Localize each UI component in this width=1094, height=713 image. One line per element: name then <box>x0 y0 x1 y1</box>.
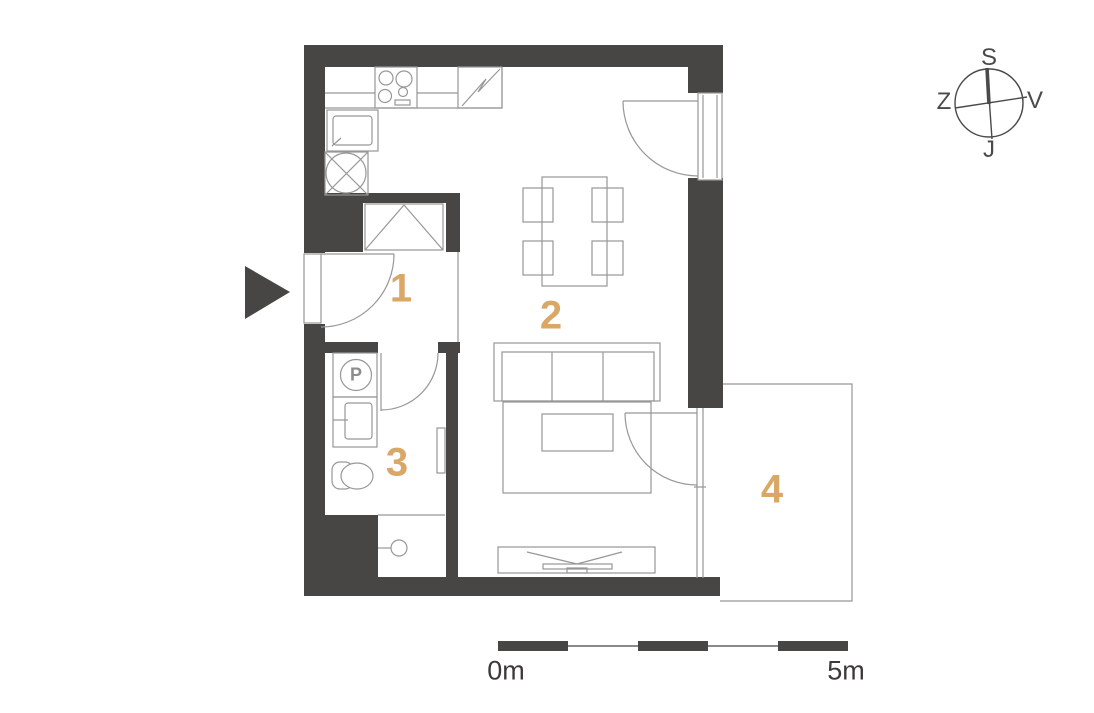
wall-bath-bottom-block <box>325 515 378 577</box>
bathroom-radiator <box>437 428 445 473</box>
burner-top-left <box>379 71 393 85</box>
fridge-zigzag <box>462 69 500 106</box>
entrance <box>245 254 394 327</box>
upper-balcony-door-swing <box>623 101 698 176</box>
floor-plan-page: 1 2 3 4 P S J Z V 0m 5m <box>0 0 1094 713</box>
wall-top-right-return <box>688 67 723 93</box>
scale-start-label: 0m <box>487 656 525 687</box>
room-label-4: 4 <box>761 468 783 513</box>
wall-top <box>304 45 723 67</box>
living-room-furniture <box>494 177 660 573</box>
walls <box>304 45 723 596</box>
wall-bottom <box>304 577 720 596</box>
upper-balcony-door-frame <box>698 93 722 180</box>
scale-segment-2 <box>638 641 708 651</box>
stove-panel <box>395 100 410 105</box>
bath-sink-basin <box>345 403 372 439</box>
compass-north-label: S <box>981 44 997 72</box>
kitchen-fixtures <box>325 67 502 195</box>
compass-east-label: V <box>1027 87 1043 115</box>
balcony-outline <box>720 384 852 601</box>
floor-plan-drawing <box>0 0 1094 713</box>
coffee-table <box>542 414 613 451</box>
room-label-3: 3 <box>386 441 408 486</box>
scale-segment-1 <box>498 641 568 651</box>
compass-south-label: J <box>983 136 995 164</box>
wall-hall-bath-left <box>325 342 378 353</box>
wall-wardrobe-top <box>363 193 460 203</box>
compass-west-label: Z <box>937 88 952 116</box>
sofa-cushions <box>502 352 654 401</box>
dining-table <box>542 177 607 286</box>
compass-east-west-line <box>955 97 1027 108</box>
chair-top-left <box>523 188 553 222</box>
wall-hall-kitchen-block <box>304 193 363 252</box>
wall-right-pillar <box>688 178 723 408</box>
burner-bottom-left <box>379 90 392 103</box>
scale-end-label: 5m <box>827 656 865 687</box>
scale-bar <box>498 641 848 651</box>
wardrobe-line-1 <box>365 205 404 250</box>
tv-angle-right <box>577 552 622 564</box>
rug <box>503 402 651 493</box>
bathroom-door-swing <box>381 353 438 410</box>
east-facade <box>623 93 852 601</box>
entrance-door-frame <box>304 254 321 323</box>
room-label-1: 1 <box>390 267 412 312</box>
entrance-door-swing <box>321 254 394 327</box>
burner-top-right <box>396 71 412 87</box>
wall-bath-living <box>446 342 458 577</box>
wall-wardrobe-right-stub <box>446 193 460 252</box>
scale-segment-3 <box>778 641 848 651</box>
tv-angle-left <box>527 552 577 564</box>
burner-bottom-right <box>399 88 408 97</box>
room-label-2: 2 <box>540 294 562 339</box>
chair-bottom-left <box>523 241 553 275</box>
compass-north-needle <box>987 68 989 104</box>
shaft-symbol-icon <box>391 540 407 556</box>
washing-machine-label: P <box>350 365 362 386</box>
lower-balcony-door-swing <box>625 413 697 485</box>
compass-rose <box>955 68 1027 139</box>
wall-left-lower <box>304 324 325 596</box>
entrance-arrow-icon <box>245 266 290 319</box>
wardrobe-line-2 <box>404 205 443 250</box>
wardrobe-icon <box>365 204 443 250</box>
toilet-bowl-icon <box>341 463 373 489</box>
